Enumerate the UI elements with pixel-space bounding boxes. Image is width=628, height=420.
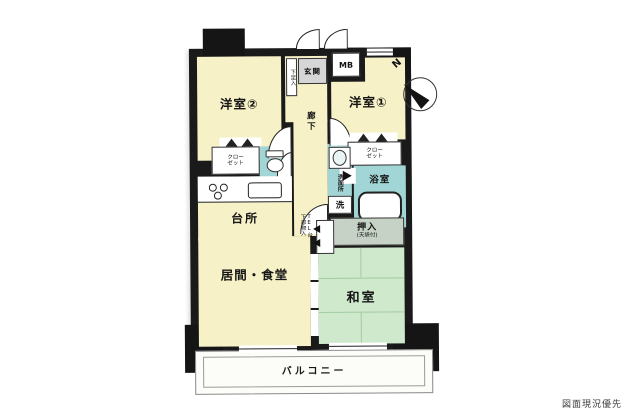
window-line bbox=[367, 51, 393, 52]
floor-plan-page: MB 下足入 玄関 クローゼット クローゼット 洗 bbox=[0, 0, 628, 420]
room-label-western1: 洋室① bbox=[331, 91, 405, 111]
room-label-japanese: 和室 bbox=[319, 286, 405, 306]
washbasin-icon bbox=[333, 150, 347, 166]
tel-stand-label: TEL台 bbox=[306, 214, 312, 266]
entrance-box: 玄関 bbox=[298, 58, 327, 84]
entrance-door-arc-icon bbox=[296, 29, 320, 49]
toilet-bowl-icon bbox=[267, 158, 284, 172]
folding-door-icon bbox=[357, 134, 369, 142]
closet-western1: クローゼット bbox=[348, 141, 402, 165]
oshiire-sublabel: (天袋付) bbox=[357, 233, 378, 239]
shoe-cabinet: 下足入 bbox=[286, 58, 297, 96]
closet-label: クローゼット bbox=[366, 147, 384, 160]
room-label-western2: 洋室② bbox=[197, 93, 281, 113]
sliding-partition-rail bbox=[310, 280, 318, 282]
entrance-door-arc-icon bbox=[324, 29, 348, 49]
room-label-kitchen: 台所 bbox=[198, 209, 292, 227]
sliding-partition bbox=[310, 254, 319, 336]
room-label-balcony: バルコニー bbox=[195, 361, 433, 378]
plan-note: 図面現況優先 bbox=[528, 397, 622, 410]
shoe-cabinet-label: 下足入 bbox=[289, 69, 295, 86]
tatami-line bbox=[360, 248, 361, 278]
meter-box: MB bbox=[332, 53, 360, 77]
oshiire-closet: 押入 (天袋付) bbox=[330, 217, 404, 246]
folding-door-icon bbox=[241, 138, 253, 146]
room-label-living-dining: 居間・食堂 bbox=[198, 264, 310, 284]
washer-label: 洗 bbox=[336, 199, 345, 211]
room-label-hallway: 廊下 bbox=[301, 101, 319, 141]
folding-door-icon bbox=[375, 133, 387, 141]
stove-burner-icon bbox=[220, 184, 228, 192]
folding-door-icon bbox=[225, 139, 237, 147]
stove-burner-icon bbox=[214, 192, 222, 200]
closet-western2: クローゼット bbox=[212, 146, 260, 174]
room-label-washroom: 洗面所 bbox=[331, 166, 349, 200]
meter-box-label: MB bbox=[339, 60, 353, 69]
closet-label: クローゼット bbox=[227, 154, 245, 167]
tatami-line bbox=[361, 313, 362, 344]
tel-stand-sublabel: 下部物入 bbox=[299, 214, 305, 266]
stove-burner-icon bbox=[209, 184, 217, 192]
entrance-label: 玄関 bbox=[304, 65, 321, 76]
room-label-bathroom: 浴室 bbox=[354, 171, 406, 185]
kitchen-sink-icon bbox=[248, 182, 282, 198]
sliding-partition-rail bbox=[311, 308, 319, 310]
floor-plan: MB 下足入 玄関 クローゼット クローゼット 洗 bbox=[0, 0, 628, 420]
folding-door-icon bbox=[313, 239, 320, 247]
folding-door-icon bbox=[313, 225, 320, 233]
toilet-tank-icon bbox=[266, 150, 284, 157]
